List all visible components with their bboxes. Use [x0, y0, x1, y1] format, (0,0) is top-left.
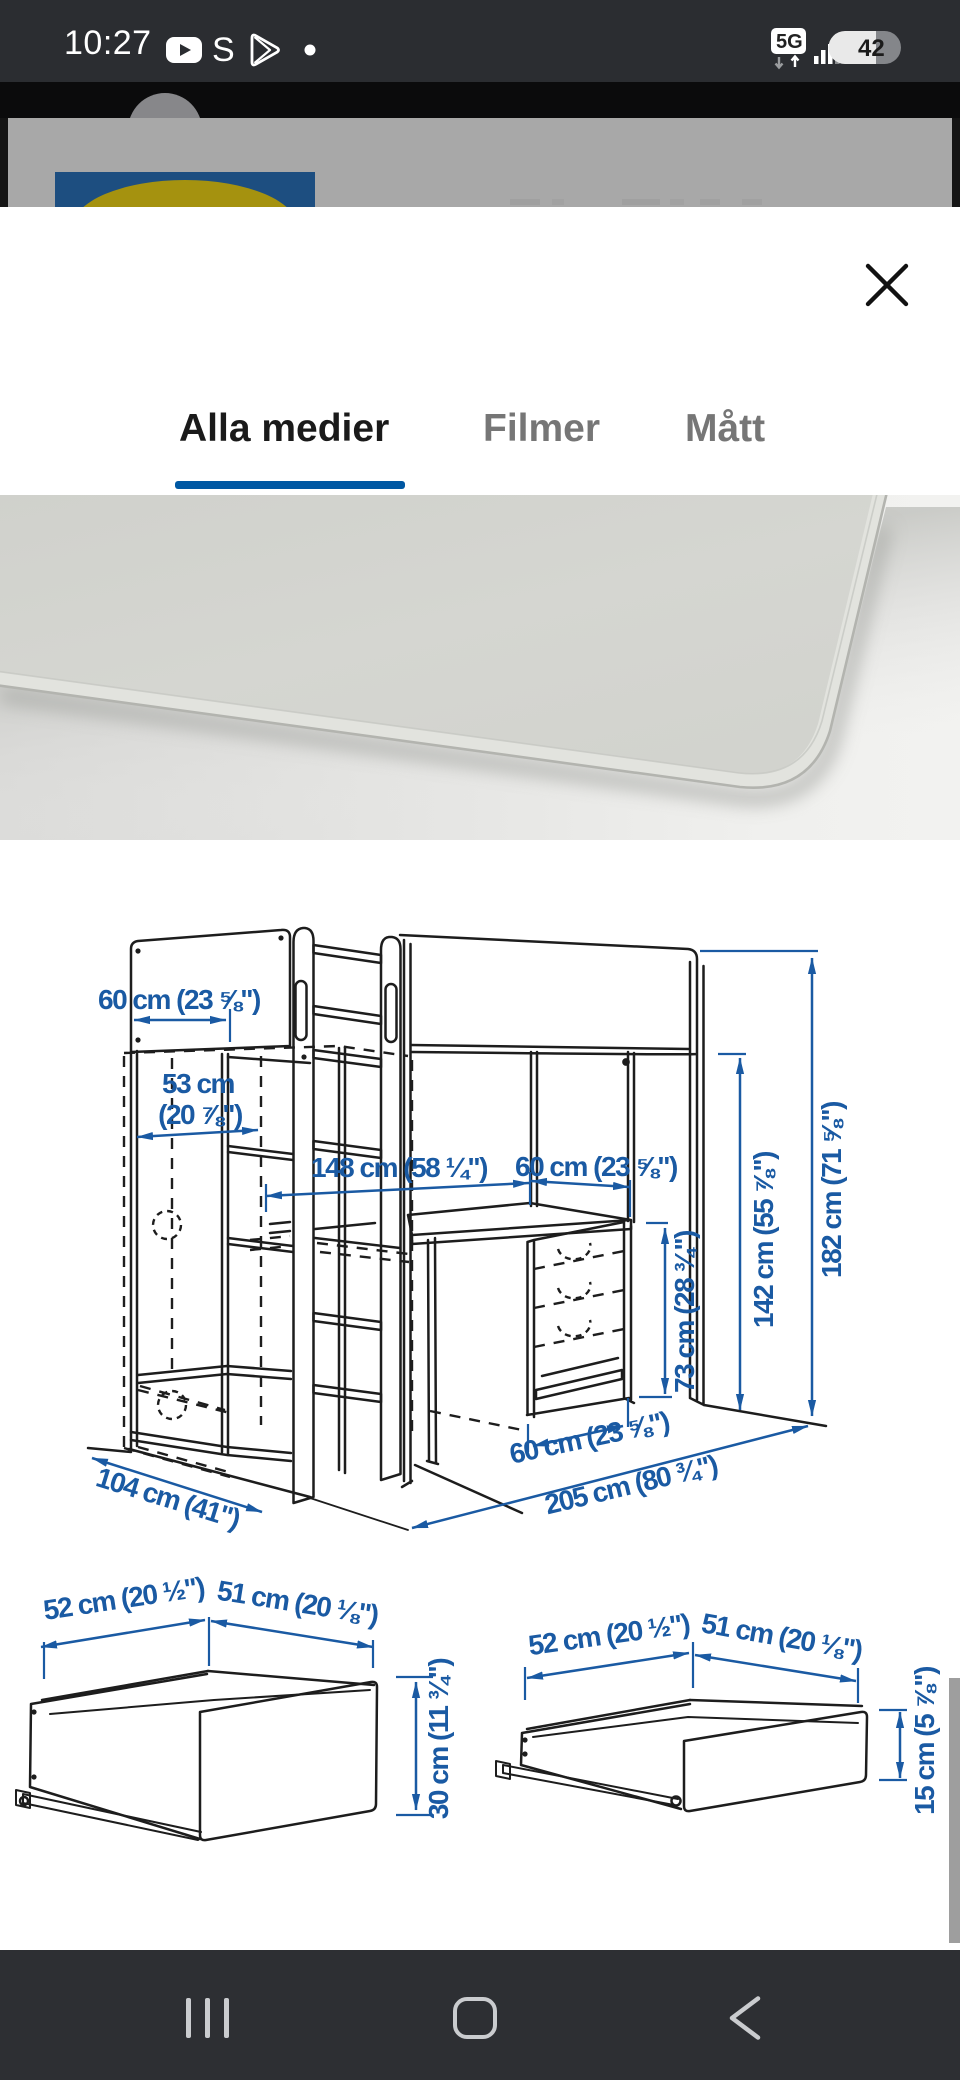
svg-text:42: 42 [858, 35, 885, 62]
svg-text:51 cm (20 ⅛"): 51 cm (20 ⅛") [699, 1607, 864, 1666]
svg-text:30 cm (11 ¾"): 30 cm (11 ¾") [423, 1659, 454, 1820]
svg-text:5G: 5G [776, 31, 803, 53]
svg-text:52 cm (20 ½"): 52 cm (20 ½") [41, 1571, 206, 1626]
svg-text:S: S [212, 31, 235, 69]
svg-text:(20 ⅞"): (20 ⅞") [158, 1099, 242, 1130]
svg-text:73 cm (28 ¾"): 73 cm (28 ¾") [669, 1231, 700, 1393]
svg-text:51 cm (20 ⅛"): 51 cm (20 ⅛") [215, 1575, 380, 1631]
svg-text:60 cm (23 ⅝"): 60 cm (23 ⅝") [98, 984, 260, 1015]
svg-text:60 cm (23 ⅝"): 60 cm (23 ⅝") [515, 1151, 677, 1182]
svg-text:15 cm (5 ⅞"): 15 cm (5 ⅞") [909, 1667, 940, 1815]
svg-text:53 cm: 53 cm [162, 1068, 234, 1099]
svg-text:52 cm (20 ½"): 52 cm (20 ½") [526, 1608, 691, 1661]
svg-text:205 cm (80 ¾"): 205 cm (80 ¾") [542, 1449, 720, 1520]
svg-text:182 cm (71 ⅝"): 182 cm (71 ⅝") [816, 1102, 847, 1278]
svg-text:142 cm (55 ⅞"): 142 cm (55 ⅞") [748, 1152, 779, 1328]
svg-text:148 cm (58 ¼"): 148 cm (58 ¼") [311, 1152, 487, 1183]
